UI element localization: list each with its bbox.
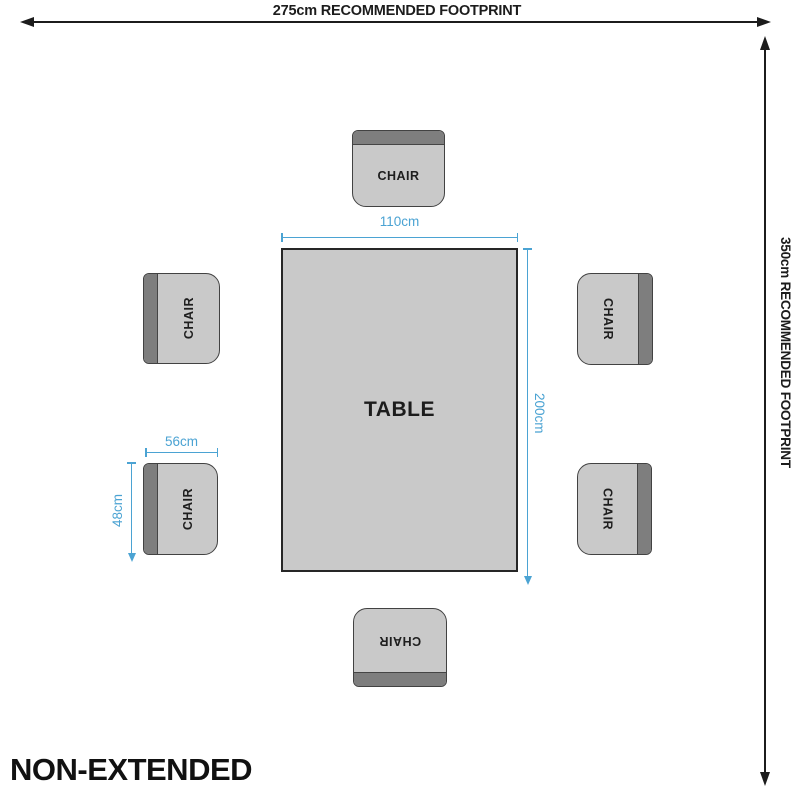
page-title: NON-EXTENDED <box>10 752 252 788</box>
chair-label: CHAIR <box>379 634 421 648</box>
chair-depth-label: 48cm <box>110 469 125 551</box>
footprint-width-arrow <box>20 16 771 28</box>
dimension-shaft <box>147 452 217 454</box>
chair-seat: CHAIR <box>353 145 444 206</box>
table-length-dimension-line <box>523 248 532 585</box>
dimension-tick <box>517 233 519 242</box>
table-length-label: 200cm <box>532 338 547 488</box>
chair-upper-right: CHAIR <box>577 273 653 365</box>
chair-seat: CHAIR <box>578 464 637 554</box>
chair-seat: CHAIR <box>354 609 446 672</box>
chair-lower-left: CHAIR <box>143 463 218 555</box>
chair-lower-right: CHAIR <box>577 463 652 555</box>
chair-label: CHAIR <box>181 488 195 530</box>
chair-label: CHAIR <box>601 298 615 340</box>
chair-seat: CHAIR <box>158 274 219 363</box>
chair-label: CHAIR <box>377 169 419 183</box>
arrow-right-icon <box>757 17 771 27</box>
dimension-shaft <box>131 464 133 554</box>
footprint-depth-label: 350cm RECOMMENDED FOOTPRINT <box>773 160 793 545</box>
chair-backrest <box>144 464 158 554</box>
footprint-diagram: 275cm RECOMMENDED FOOTPRINT 350cm RECOMM… <box>0 0 800 800</box>
dimension-arrow-down-icon <box>524 576 532 585</box>
chair-width-label: 56cm <box>145 434 218 449</box>
chair-backrest <box>354 672 446 686</box>
chair-label: CHAIR <box>601 488 615 530</box>
dimension-shaft <box>527 250 529 577</box>
table-width-dimension-line <box>281 233 518 242</box>
dimension-tick <box>217 448 219 457</box>
chair-backrest <box>353 131 444 145</box>
chair-backrest <box>637 464 651 554</box>
arrow-shaft <box>764 50 767 772</box>
chair-label: CHAIR <box>182 297 196 339</box>
chair-seat: CHAIR <box>578 274 638 364</box>
chair-seat: CHAIR <box>158 464 217 554</box>
arrow-left-icon <box>20 17 34 27</box>
chair-depth-dimension-line <box>127 462 136 562</box>
chair-width-dimension-line <box>145 448 218 457</box>
table-label: TABLE <box>364 398 435 422</box>
chair-top: CHAIR <box>352 130 445 207</box>
table: TABLE <box>281 248 518 572</box>
dimension-shaft <box>283 237 517 239</box>
table-width-label: 110cm <box>281 214 518 229</box>
footprint-depth-arrow <box>759 36 771 786</box>
arrow-down-icon <box>760 772 770 786</box>
chair-backrest <box>638 274 652 364</box>
arrow-shaft <box>34 21 757 24</box>
dimension-arrow-down-icon <box>128 553 136 562</box>
chair-upper-left: CHAIR <box>143 273 220 364</box>
chair-bottom: CHAIR <box>353 608 447 687</box>
chair-backrest <box>144 274 158 363</box>
arrow-up-icon <box>760 36 770 50</box>
